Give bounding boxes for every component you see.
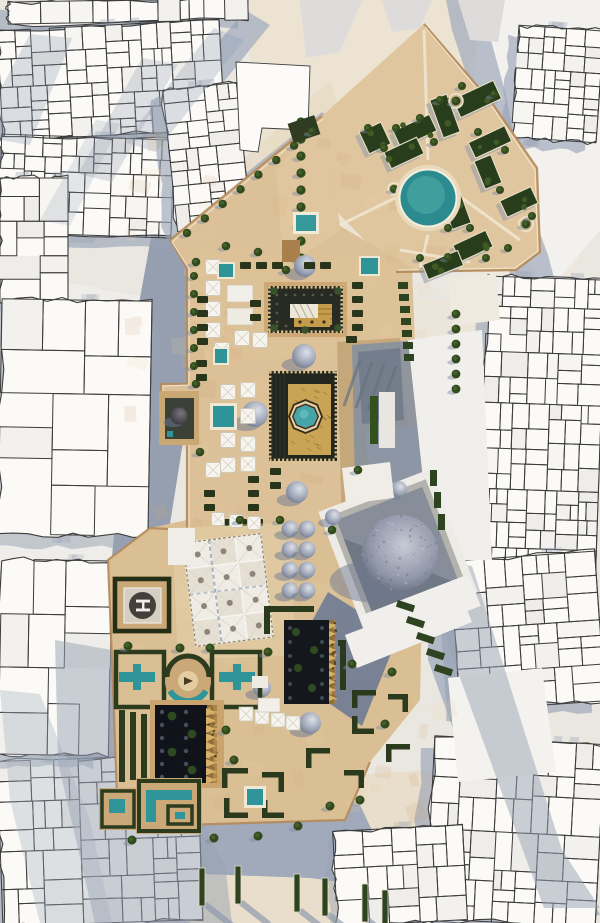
svg-text:H: H: [131, 598, 153, 612]
